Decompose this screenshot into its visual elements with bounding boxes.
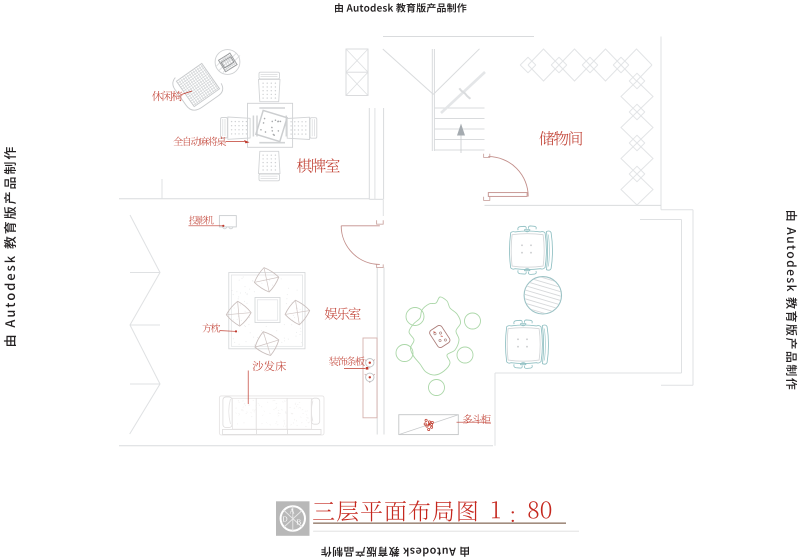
svg-text:A: A <box>290 508 295 516</box>
svg-text:B: B <box>297 519 302 527</box>
svg-text:D: D <box>283 516 288 524</box>
